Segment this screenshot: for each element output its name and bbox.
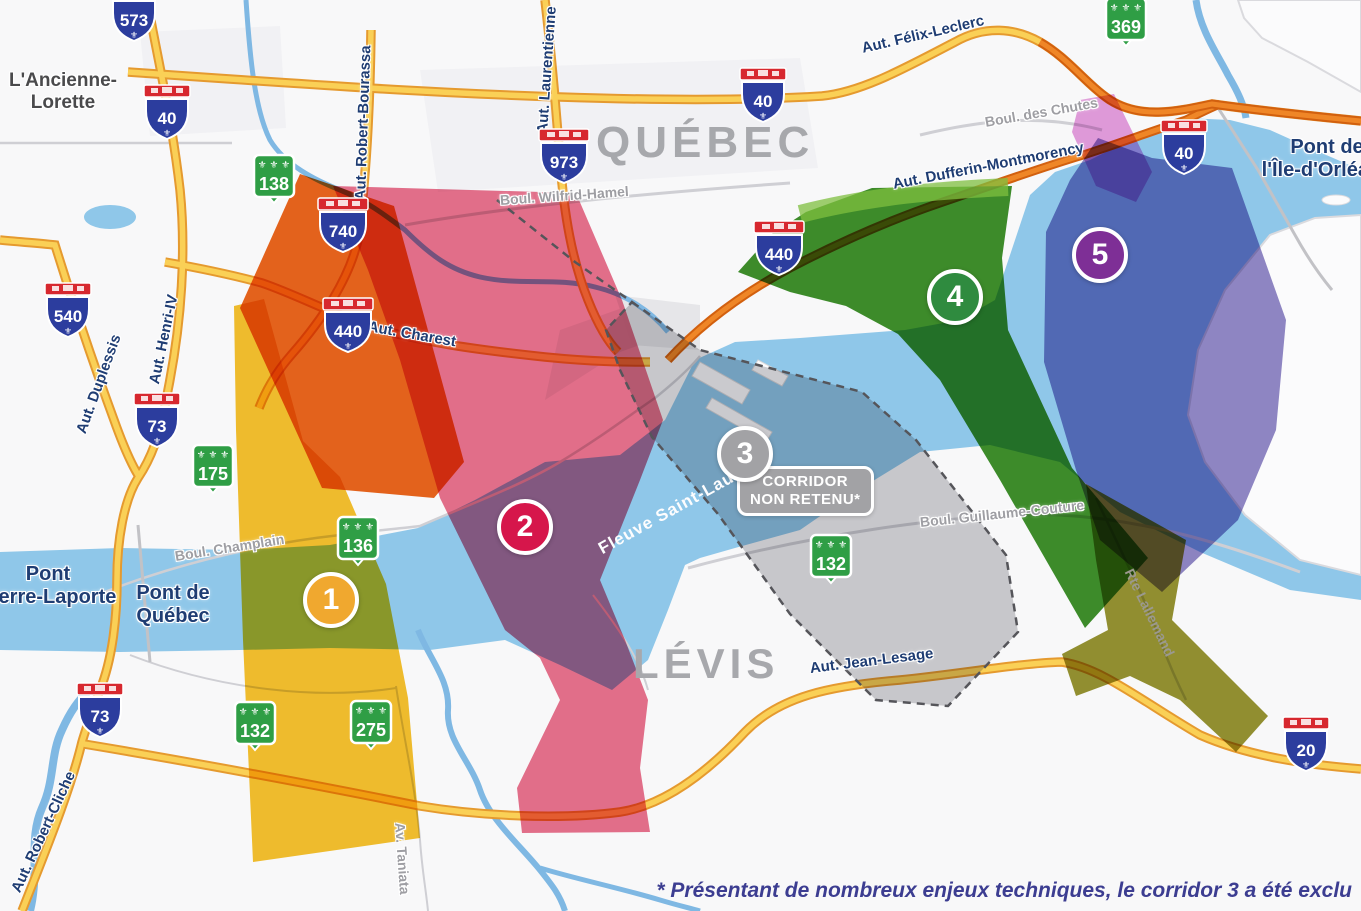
autoroute-shield-73-south: 73 ⚜: [76, 682, 124, 745]
fleur-de-lis-icon: ⚜: [344, 341, 352, 351]
fleur-de-lis-icon: ⚜: [1302, 760, 1310, 770]
autoroute-shield-40-west: 40 ⚜: [143, 84, 191, 147]
fleur-de-lis-icon: ⚜: [759, 111, 767, 121]
small-lake: [84, 205, 136, 229]
label-line: CORRIDOR: [750, 473, 861, 491]
svg-text:132: 132: [816, 554, 846, 574]
fleur-de-lis-row-icon: ⚜ ⚜ ⚜: [342, 522, 374, 533]
route-marker-138: ⚜ ⚜ ⚜ 138: [252, 153, 296, 210]
svg-text:369: 369: [1111, 17, 1141, 37]
route-marker-175: ⚜ ⚜ ⚜ 175: [191, 443, 235, 500]
fleur-de-lis-row-icon: ⚜ ⚜ ⚜: [258, 160, 290, 171]
fleur-de-lis-icon: ⚜: [96, 726, 104, 736]
autoroute-shield-573: 573 ⚜: [110, 0, 158, 49]
fleur-de-lis-icon: ⚜: [560, 172, 568, 182]
fleur-de-lis-icon: ⚜: [1180, 163, 1188, 173]
fleur-de-lis-row-icon: ⚜ ⚜ ⚜: [239, 707, 271, 718]
fleur-de-lis-row-icon: ⚜ ⚜ ⚜: [355, 706, 387, 717]
svg-text:40: 40: [754, 92, 773, 111]
badge-number: 5: [1092, 238, 1109, 271]
badge-number: 1: [323, 583, 340, 616]
svg-text:132: 132: [240, 721, 270, 741]
autoroute-shield-40-center: 40 ⚜: [739, 67, 787, 130]
corridor-4-badge: 4: [927, 269, 983, 325]
badge-number: 3: [737, 437, 754, 470]
route-marker-369: ⚜ ⚜ ⚜ 369: [1104, 0, 1148, 53]
autoroute-shield-73-north: 73 ⚜: [133, 392, 181, 455]
svg-text:740: 740: [329, 222, 357, 241]
autoroute-shield-740: 740 ⚜: [317, 197, 369, 260]
corridor-1-badge: 1: [303, 572, 359, 628]
fleur-de-lis-row-icon: ⚜ ⚜ ⚜: [197, 450, 229, 461]
svg-text:138: 138: [259, 174, 289, 194]
islet: [1322, 195, 1350, 205]
autoroute-shield-20: 20 ⚜: [1282, 716, 1330, 779]
corridor-2-badge: 2: [497, 499, 553, 555]
svg-text:40: 40: [1175, 144, 1194, 163]
svg-text:136: 136: [343, 536, 373, 556]
badge-number: 4: [947, 280, 964, 313]
svg-text:20: 20: [1297, 741, 1316, 760]
fleur-de-lis-icon: ⚜: [775, 264, 783, 274]
svg-text:275: 275: [356, 720, 386, 740]
autoroute-shield-440-west: 440 ⚜: [322, 297, 374, 360]
autoroute-shield-440-east: 440 ⚜: [753, 220, 805, 283]
route-marker-132-west: ⚜ ⚜ ⚜ 132: [233, 700, 277, 757]
svg-text:40: 40: [158, 109, 177, 128]
autoroute-shield-40-east: 40 ⚜: [1160, 119, 1208, 182]
fleur-de-lis-row-icon: ⚜ ⚜ ⚜: [1110, 3, 1142, 14]
map-footnote: * Présentant de nombreux enjeux techniqu…: [656, 879, 1352, 903]
autoroute-shield-540: 540 ⚜: [44, 282, 92, 345]
label-line: NON RETENU*: [750, 491, 861, 509]
route-marker-275: ⚜ ⚜ ⚜ 275: [349, 699, 393, 756]
autoroute-shield-973: 973 ⚜: [538, 128, 590, 191]
fleur-de-lis-icon: ⚜: [153, 436, 161, 446]
badge-number: 2: [517, 510, 534, 543]
svg-text:573: 573: [120, 11, 148, 30]
corridors-map: QUÉBEC LÉVIS L'Ancienne- Lorette Pont Pi…: [0, 0, 1361, 911]
fleur-de-lis-row-icon: ⚜ ⚜ ⚜: [815, 540, 847, 551]
route-marker-132-east: ⚜ ⚜ ⚜ 132: [809, 533, 853, 590]
fleur-de-lis-icon: ⚜: [64, 326, 72, 336]
fleur-de-lis-icon: ⚜: [339, 241, 347, 251]
corridor-3-badge: 3: [717, 426, 773, 482]
svg-text:73: 73: [91, 707, 110, 726]
fleur-de-lis-icon: ⚜: [130, 30, 138, 40]
svg-text:440: 440: [334, 322, 362, 341]
route-marker-136: ⚜ ⚜ ⚜ 136: [336, 515, 380, 572]
svg-text:175: 175: [198, 464, 228, 484]
svg-text:540: 540: [54, 307, 82, 326]
svg-text:440: 440: [765, 245, 793, 264]
fleur-de-lis-icon: ⚜: [163, 128, 171, 138]
svg-text:73: 73: [148, 417, 167, 436]
svg-text:973: 973: [550, 153, 578, 172]
corridor-5-badge: 5: [1072, 227, 1128, 283]
